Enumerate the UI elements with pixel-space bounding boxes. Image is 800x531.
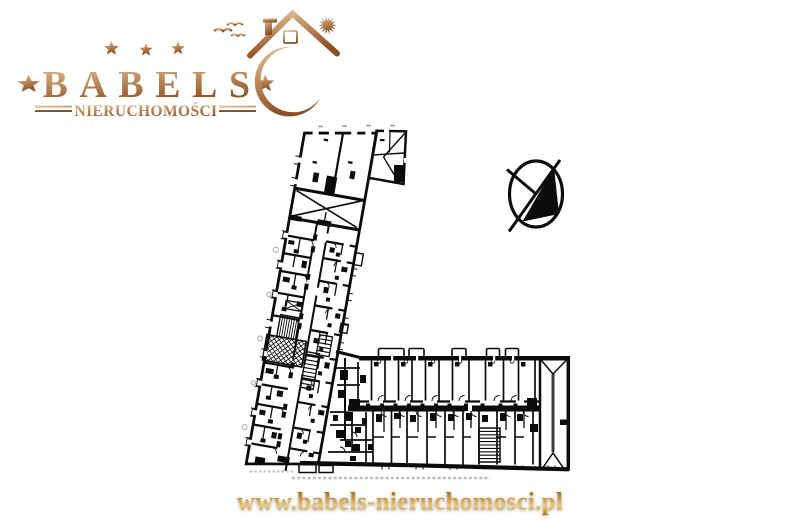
svg-text:www.babels-nieruchomosci.pl: www.babels-nieruchomosci.pl <box>237 489 563 516</box>
svg-text:BABELS: BABELS <box>43 64 262 106</box>
svg-text:NIERUCHOMOŚCI: NIERUCHOMOŚCI <box>75 103 218 120</box>
